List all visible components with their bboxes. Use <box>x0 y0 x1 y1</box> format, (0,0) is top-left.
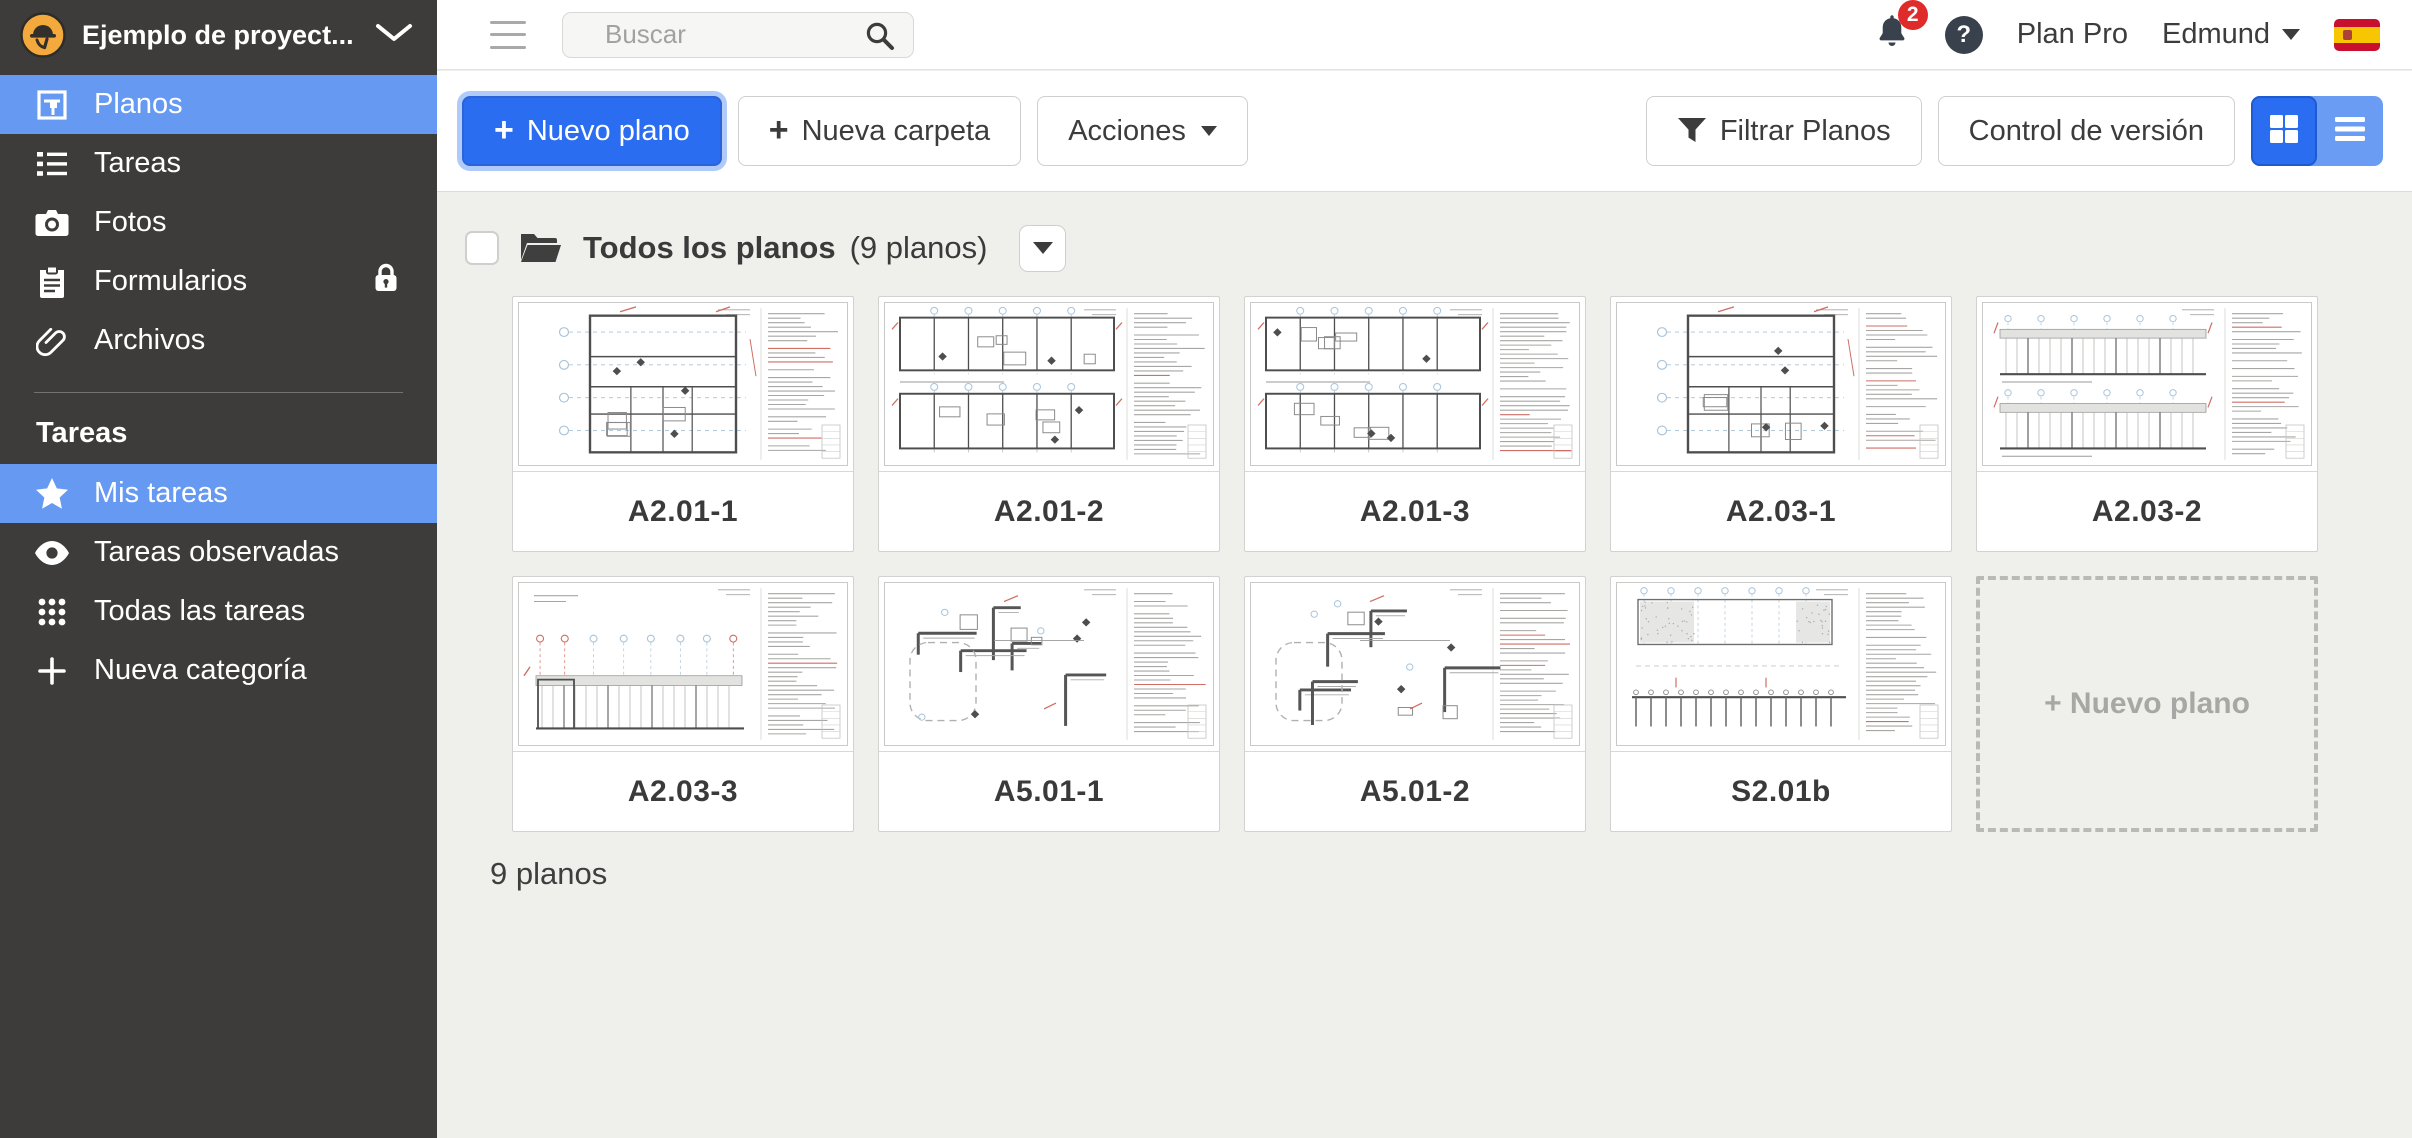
search-icon[interactable] <box>864 20 896 57</box>
plan-title: A5.01-1 <box>879 752 1219 831</box>
sidebar-item-label: Fotos <box>94 206 167 239</box>
plan-card[interactable]: A2.01-3 <box>1244 296 1586 552</box>
plan-title: A2.01-3 <box>1245 472 1585 551</box>
plans-total-count: 9 planos <box>490 856 2412 892</box>
plan-card[interactable]: S2.01b <box>1610 576 1952 832</box>
sidebar-item-archivos[interactable]: Archivos <box>0 311 437 370</box>
sidebar-item-label: Tareas <box>94 147 181 180</box>
sidebar-item-fotos[interactable]: Fotos <box>0 193 437 252</box>
project-selector[interactable]: Ejemplo de proyect... <box>0 0 437 70</box>
sidebar-item-label: Nueva categoría <box>94 654 307 687</box>
topbar-right: 2 ? Plan Pro Edmund <box>1873 13 2412 56</box>
plus-icon <box>34 656 70 686</box>
plan-thumbnail <box>1611 297 1951 472</box>
sidebar-item-mis-tareas[interactable]: Mis tareas <box>0 464 437 523</box>
folder-actions-dropdown[interactable] <box>1019 225 1066 272</box>
new-folder-label: Nueva carpeta <box>802 115 991 148</box>
plan-title: S2.01b <box>1611 752 1951 831</box>
flag-emblem <box>2343 30 2352 40</box>
chevron-down-icon <box>375 23 413 48</box>
plan-card[interactable]: A2.01-1 <box>512 296 854 552</box>
menu-icon[interactable] <box>490 21 526 49</box>
user-name: Edmund <box>2162 18 2270 51</box>
filter-plans-label: Filtrar Planos <box>1720 115 1891 148</box>
tasks-list-icon <box>34 149 70 179</box>
filter-plans-button[interactable]: Filtrar Planos <box>1646 96 1922 166</box>
new-plan-button[interactable]: + Nuevo plano <box>462 96 722 166</box>
sidebar-item-todas-las-tareas[interactable]: Todas las tareas <box>0 582 437 641</box>
sidebar-item-label: Archivos <box>94 324 205 357</box>
plan-card[interactable]: A2.03-1 <box>1610 296 1952 552</box>
plan-thumbnail <box>1611 577 1951 752</box>
plan-thumbnail <box>879 577 1219 752</box>
topbar: 2 ? Plan Pro Edmund <box>437 0 2412 70</box>
folder-count: (9 planos) <box>850 230 988 266</box>
folder-header-row: Todos los planos (9 planos) <box>465 224 2412 272</box>
app-logo-icon <box>20 12 66 58</box>
actions-label: Acciones <box>1068 115 1186 148</box>
sidebar-item-nueva-categoria[interactable]: Nueva categoría <box>0 641 437 700</box>
version-control-button[interactable]: Control de versión <box>1938 96 2235 166</box>
plans-content: Todos los planos (9 planos) A2.01-1A2.01… <box>437 192 2412 1138</box>
plan-card[interactable]: A2.03-2 <box>1976 296 2318 552</box>
grid-dots-icon <box>34 597 70 627</box>
help-button[interactable]: ? <box>1945 16 1983 54</box>
plan-title: A2.03-3 <box>513 752 853 831</box>
version-control-label: Control de versión <box>1969 115 2204 148</box>
caret-down-icon <box>1033 242 1053 254</box>
view-toggle <box>2251 96 2383 166</box>
folder-title: Todos los planos <box>583 230 836 266</box>
new-folder-button[interactable]: + Nueva carpeta <box>738 96 1021 166</box>
new-plan-label: Nuevo plano <box>527 115 690 148</box>
select-all-checkbox[interactable] <box>465 231 499 265</box>
plan-thumbnail <box>1977 297 2317 472</box>
plan-thumbnail <box>513 297 853 472</box>
user-menu[interactable]: Edmund <box>2162 18 2300 51</box>
clipboard-icon <box>34 266 70 298</box>
plan-title: A5.01-2 <box>1245 752 1585 831</box>
plus-icon: + <box>769 113 789 147</box>
bell-icon <box>1873 38 1911 55</box>
plus-icon: + <box>494 113 514 147</box>
filter-icon <box>1677 117 1707 145</box>
folder-open-icon <box>519 231 561 265</box>
actions-button[interactable]: Acciones <box>1037 96 1248 166</box>
plan-title: A2.03-1 <box>1611 472 1951 551</box>
sidebar-item-tareas-observadas[interactable]: Tareas observadas <box>0 523 437 582</box>
plan-card[interactable]: A5.01-2 <box>1244 576 1586 832</box>
camera-icon <box>34 209 70 237</box>
list-view-button[interactable] <box>2317 96 2383 166</box>
project-title: Ejemplo de proyect... <box>82 20 359 51</box>
new-plan-placeholder-label: + Nuevo plano <box>2044 687 2250 721</box>
plans-grid: A2.01-1A2.01-2A2.01-3A2.03-1A2.03-2A2.03… <box>512 296 2412 832</box>
new-plan-placeholder[interactable]: + Nuevo plano <box>1976 576 2318 832</box>
plans-icon <box>34 89 70 121</box>
plan-title: A2.01-1 <box>513 472 853 551</box>
sidebar-item-tareas[interactable]: Tareas <box>0 134 437 193</box>
plan-thumbnail <box>1245 297 1585 472</box>
plan-thumbnail <box>1245 577 1585 752</box>
sidebar-nav: Planos Tareas Fotos Formularios <box>0 70 437 700</box>
paperclip-icon <box>34 325 70 357</box>
sidebar-item-formularios[interactable]: Formularios <box>0 252 437 311</box>
grid-view-icon <box>2268 113 2300 150</box>
plan-title: A2.01-2 <box>879 472 1219 551</box>
plans-toolbar: + Nuevo plano + Nueva carpeta Acciones F… <box>437 71 2412 192</box>
plan-card[interactable]: A2.03-3 <box>512 576 854 832</box>
search-input[interactable] <box>562 12 914 58</box>
sidebar-item-label: Formularios <box>94 265 247 298</box>
caret-down-icon <box>1201 126 1217 136</box>
sidebar-item-label: Mis tareas <box>94 477 228 510</box>
notifications-button[interactable]: 2 <box>1873 13 1911 56</box>
list-view-icon <box>2334 116 2366 147</box>
plan-title: A2.03-2 <box>1977 472 2317 551</box>
grid-view-button[interactable] <box>2251 96 2317 166</box>
plan-card[interactable]: A5.01-1 <box>878 576 1220 832</box>
notification-badge: 2 <box>1898 0 1928 30</box>
lock-icon <box>373 263 399 301</box>
eye-icon <box>34 541 70 565</box>
question-mark-icon: ? <box>1956 21 1971 49</box>
sidebar: Ejemplo de proyect... Planos Tareas Foto… <box>0 0 437 1138</box>
sidebar-item-label: Todas las tareas <box>94 595 305 628</box>
sidebar-item-planos[interactable]: Planos <box>0 75 437 134</box>
plan-card[interactable]: A2.01-2 <box>878 296 1220 552</box>
plan-thumbnail <box>879 297 1219 472</box>
sidebar-item-label: Tareas observadas <box>94 536 339 569</box>
sidebar-section-title: Tareas <box>0 393 437 464</box>
language-flag-spain[interactable] <box>2334 19 2380 51</box>
plan-badge[interactable]: Plan Pro <box>2017 18 2128 51</box>
star-icon <box>34 478 70 510</box>
caret-down-icon <box>2282 29 2300 40</box>
plan-thumbnail <box>513 577 853 752</box>
sidebar-item-label: Planos <box>94 88 183 121</box>
search-box <box>562 12 914 58</box>
